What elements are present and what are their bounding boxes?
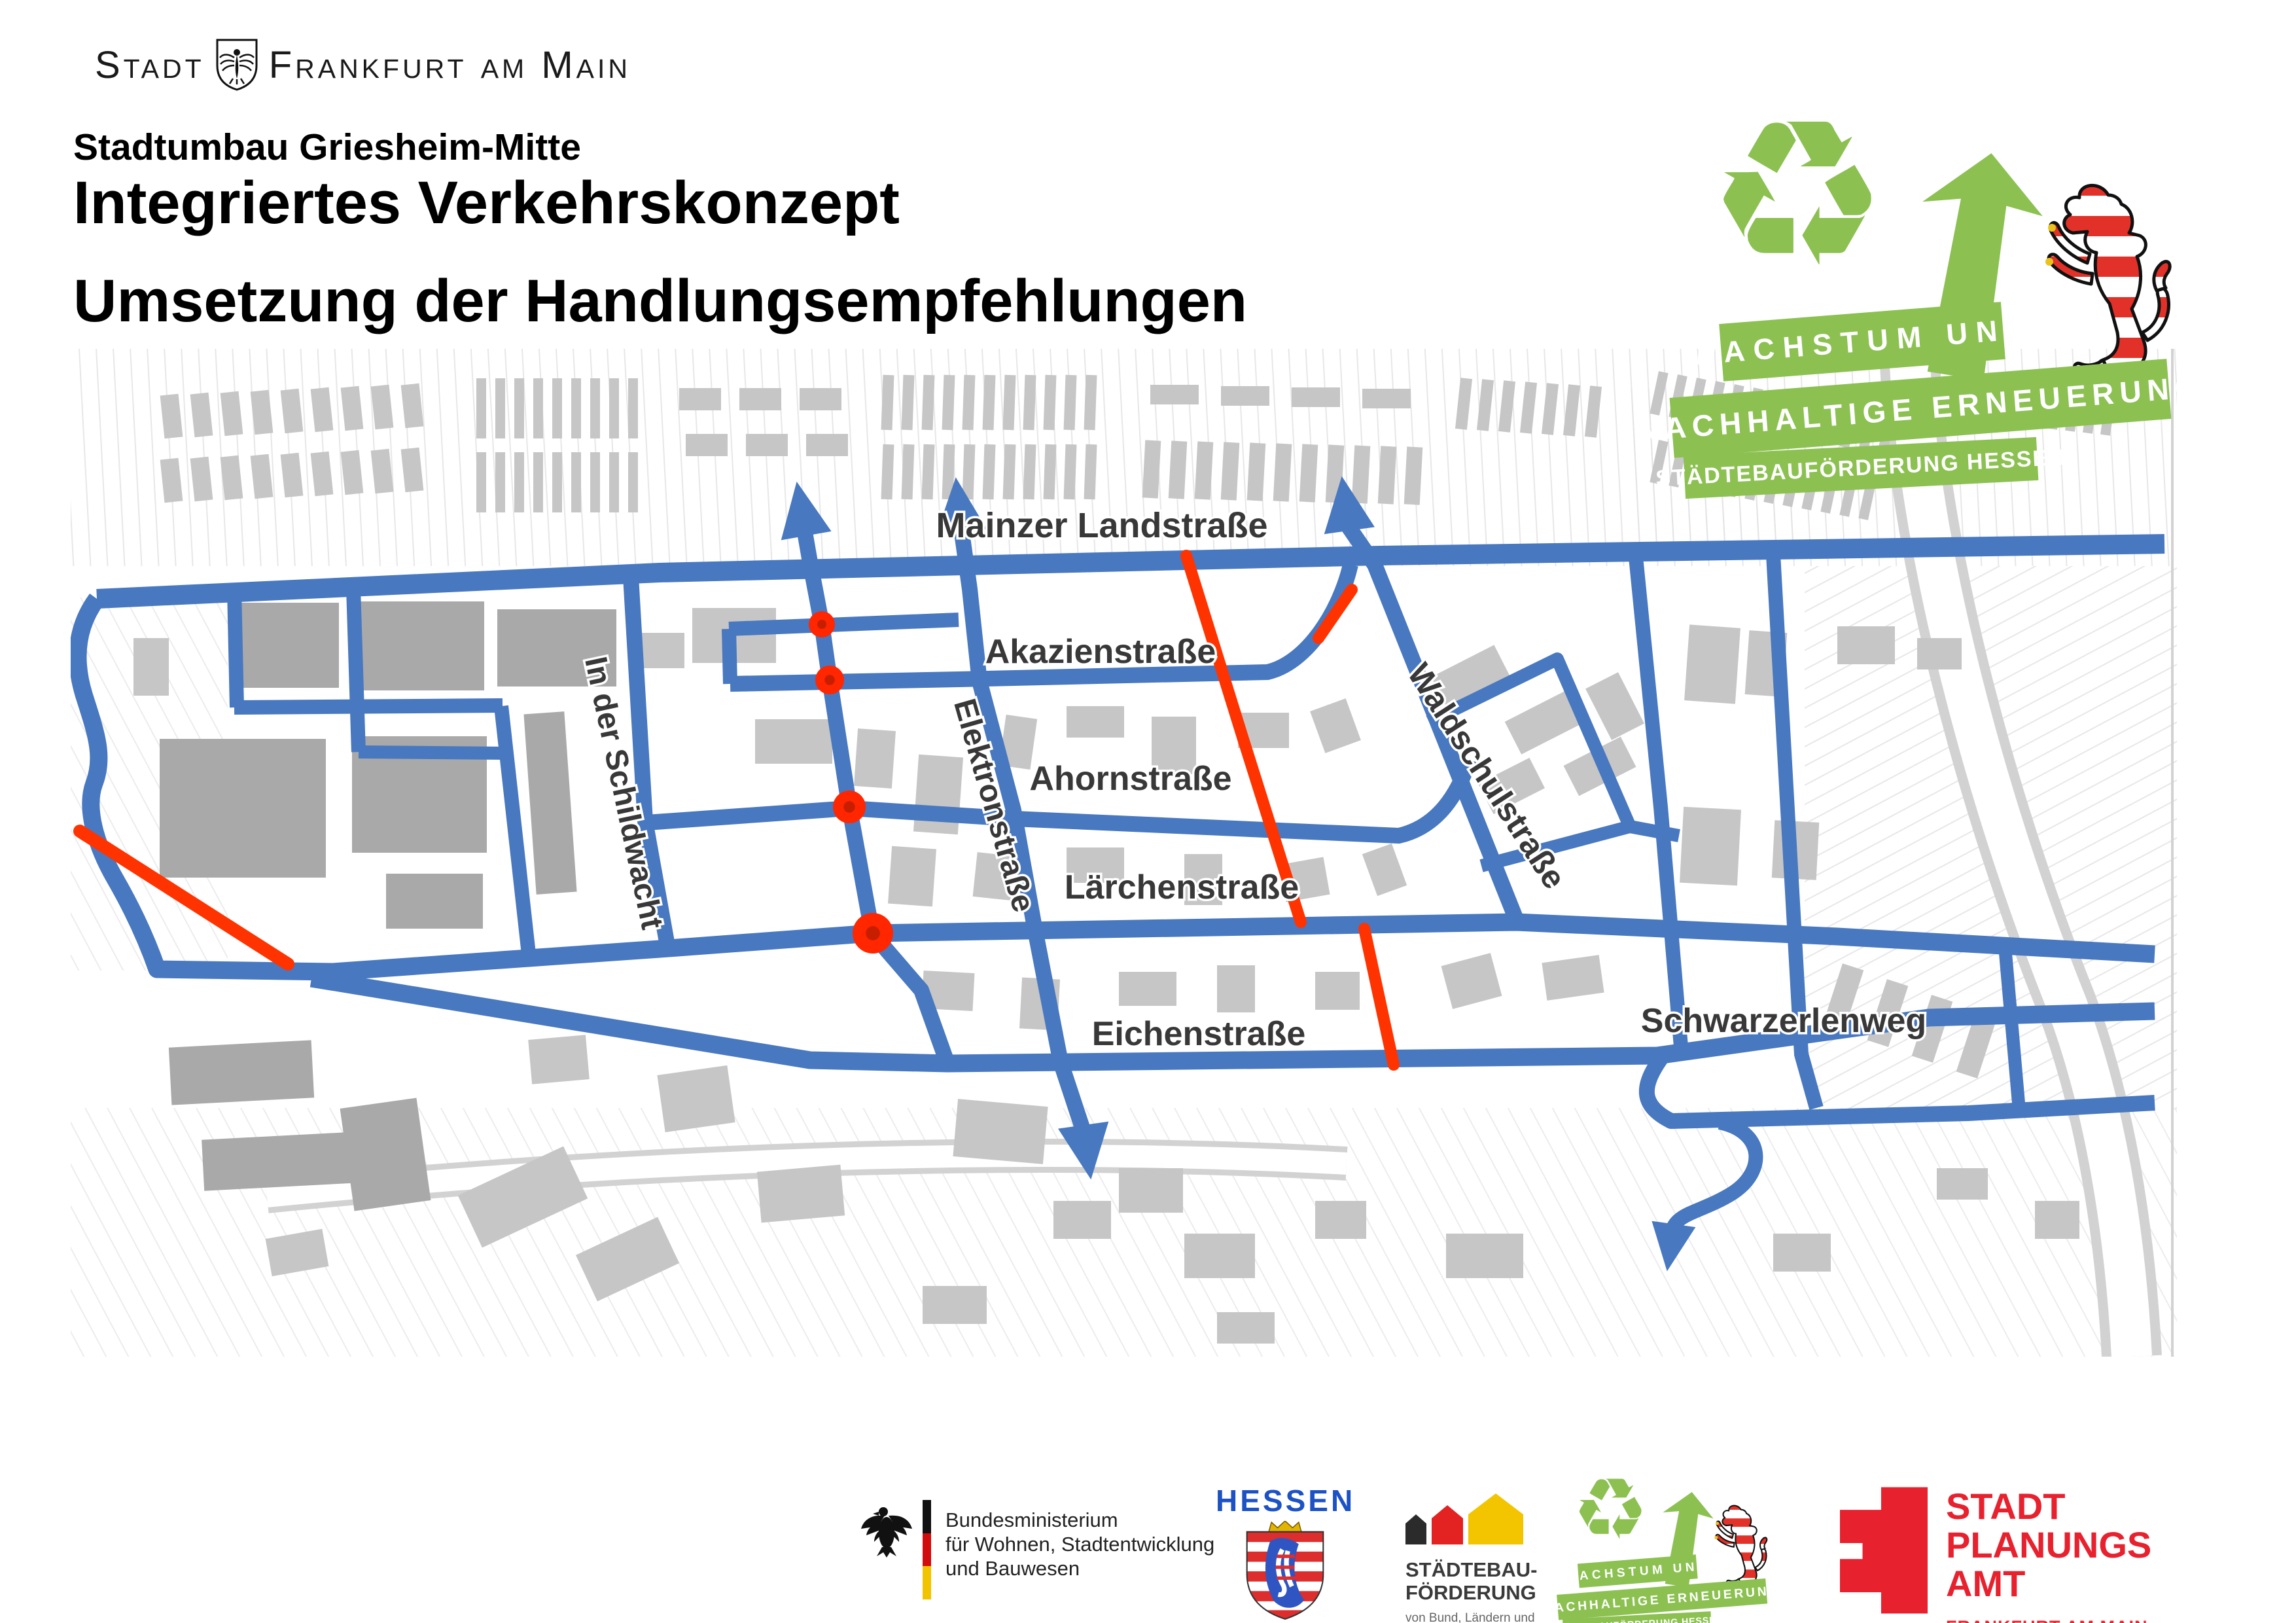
poster-title-2: Umsetzung der Handlungsempfehlungen — [73, 267, 1247, 336]
bmwsb-line3: und Bauwesen — [945, 1556, 1214, 1580]
hessen-logo: HESSEN — [1216, 1483, 1354, 1623]
stadtplanungsamt-logo: STADT PLANUNGS AMT FRANKFURT AM MAIN — [1840, 1487, 2151, 1623]
bundesadler-icon — [858, 1500, 915, 1559]
frankfurt-eagle-crest-icon — [215, 38, 258, 92]
city-logo-word-stadt: Stadt — [95, 43, 205, 87]
poster-title: Integriertes Verkehrskonzept — [73, 169, 900, 238]
frankfurt-city-logo: Stadt Frankfurt am Main — [95, 38, 631, 92]
pamt-sub: FRANKFURT AM MAIN — [1946, 1617, 2151, 1623]
city-logo-word-frankfurt: Frankfurt am Main — [269, 43, 631, 87]
street-label: Eichenstraße — [1092, 1015, 1306, 1053]
german-flag-bar — [923, 1500, 931, 1599]
staedtebau-sub1: von Bund, Ländern und — [1405, 1611, 1563, 1623]
staedtebau-line1: STÄDTEBAU- — [1405, 1558, 1563, 1581]
bundesministerium-logo: Bundesministerium für Wohnen, Stadtentwi… — [858, 1500, 1214, 1599]
hessen-coat-of-arms-icon — [1242, 1521, 1328, 1620]
hessen-wordmark: HESSEN — [1216, 1483, 1354, 1518]
street-label: In der Schildwacht — [578, 654, 669, 933]
staedtebaufoerderung-logo: STÄDTEBAU- FÖRDERUNG von Bund, Ländern u… — [1405, 1493, 1563, 1623]
wachstum-erneuerung-logo-small: ♻ WACHSTUM UNDNACHHALTIGE ERNEUERUNGSTÄD… — [1561, 1478, 1781, 1623]
poster-subtitle: Stadtumbau Griesheim-Mitte — [73, 126, 581, 169]
stadtplanungsamt-glyph-icon — [1840, 1487, 1928, 1614]
street-label: Mainzer Landstraße — [936, 506, 1267, 545]
street-label: Ahornstraße — [1029, 760, 1231, 798]
recycle-arrows-icon: ♻ — [1572, 1467, 1649, 1552]
street-label: Akazienstraße — [985, 633, 1216, 671]
pamt-line3: AMT — [1946, 1564, 2151, 1603]
bmwsb-line2: für Wohnen, Stadtentwicklung — [945, 1532, 1214, 1556]
staedtebau-houses-icon — [1405, 1493, 1527, 1546]
recycle-arrows-icon: ♻ — [1706, 93, 1888, 296]
pamt-line2: PLANUNGS — [1946, 1525, 2151, 1564]
bmwsb-line1: Bundesministerium — [945, 1508, 1214, 1532]
street-label: Schwarzerlenweg — [1641, 1002, 1926, 1040]
pamt-line1: STADT — [1946, 1487, 2151, 1525]
staedtebau-line2: FÖRDERUNG — [1405, 1581, 1563, 1604]
poster-page: Stadt Frankfurt am Main Stadtumbau Gries… — [0, 0, 2296, 1623]
street-label: Lärchenstraße — [1065, 868, 1299, 906]
wachstum-erneuerung-logo: ♻ WACHSTUM UNDNACHHALTIGE ERNEUERUNGSTÄD… — [1680, 119, 2204, 512]
